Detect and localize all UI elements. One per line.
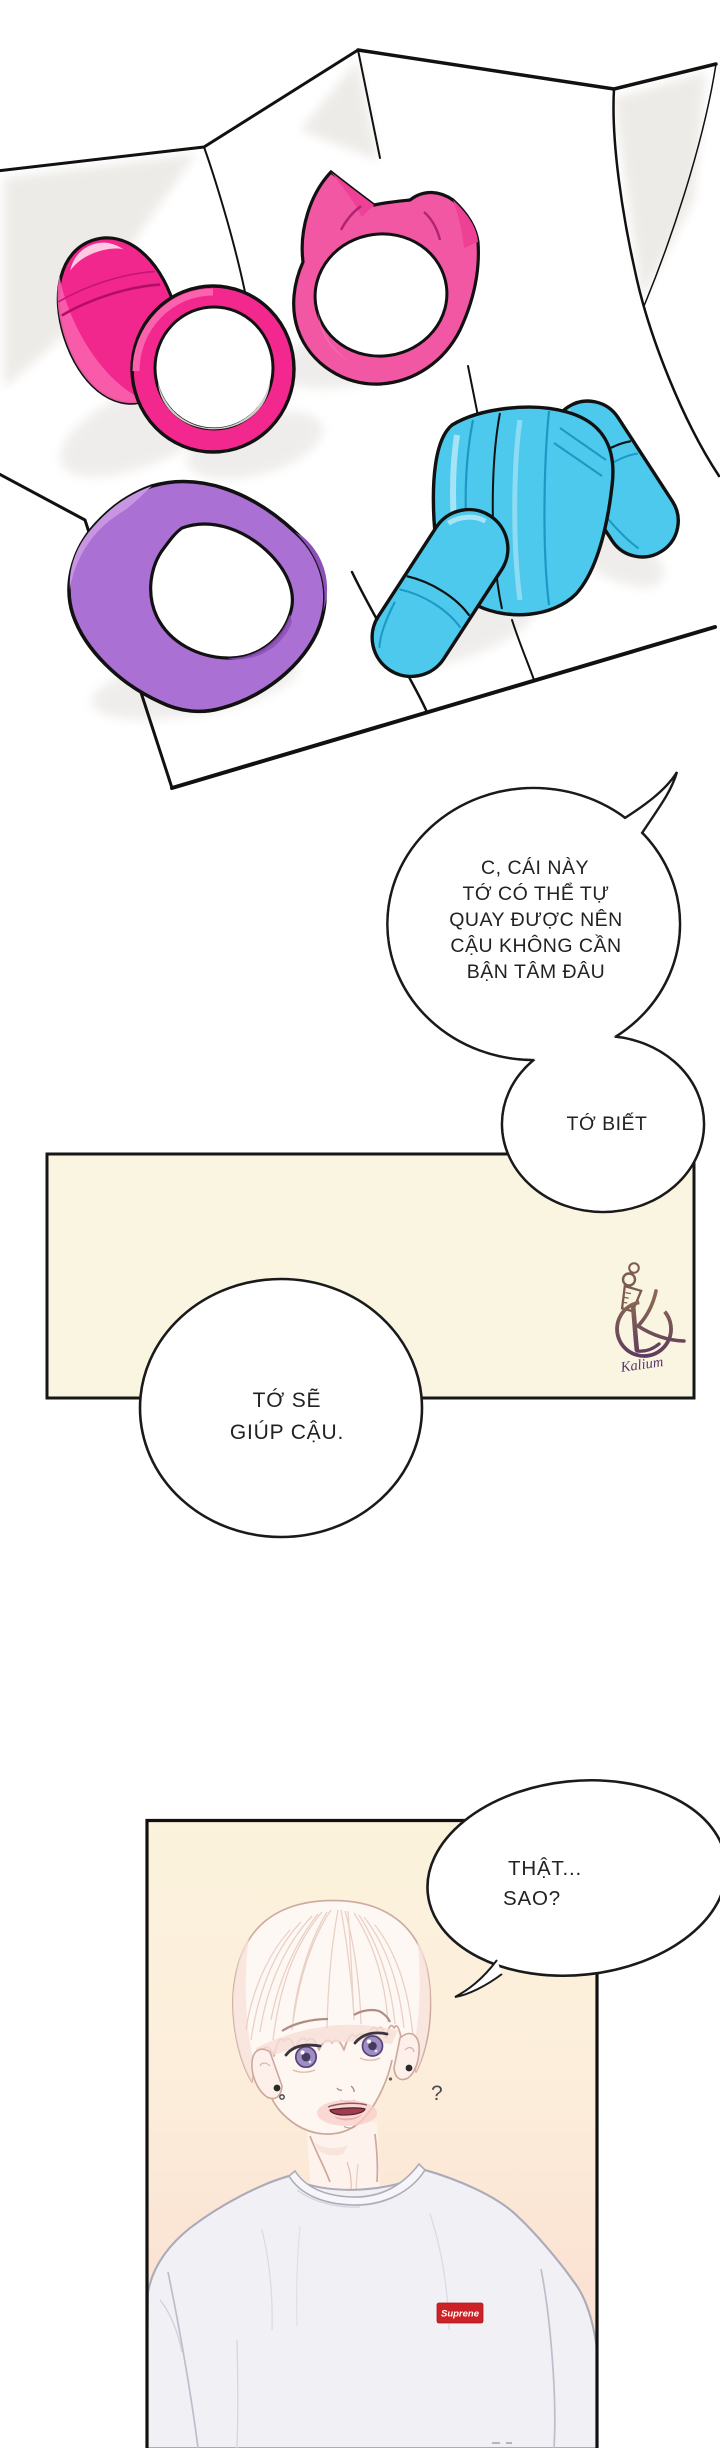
svg-text:Suprene: Suprene (441, 2309, 480, 2320)
svg-text:TỚ BIẾT: TỚ BIẾT (567, 1112, 648, 1135)
svg-text:BẬN TÂM ĐÂU: BẬN TÂM ĐÂU (467, 960, 605, 983)
svg-text:TỚ CÓ THỂ TỰ: TỚ CÓ THỂ TỰ (463, 882, 610, 905)
svg-text:TỚ SẼ: TỚ SẼ (253, 1388, 322, 1412)
svg-text:?: ? (431, 2082, 443, 2105)
svg-text:GIÚP CẬU.: GIÚP CẬU. (230, 1421, 344, 1444)
svg-text:SAO?: SAO? (503, 1887, 561, 1910)
svg-text:C, CÁI NÀY: C, CÁI NÀY (481, 856, 589, 879)
svg-text:QUAY ĐƯỢC NÊN: QUAY ĐƯỢC NÊN (449, 908, 623, 931)
svg-text:CẬU KHÔNG CẦN: CẬU KHÔNG CẦN (450, 934, 621, 957)
svg-text:THẬT...: THẬT... (508, 1857, 582, 1880)
